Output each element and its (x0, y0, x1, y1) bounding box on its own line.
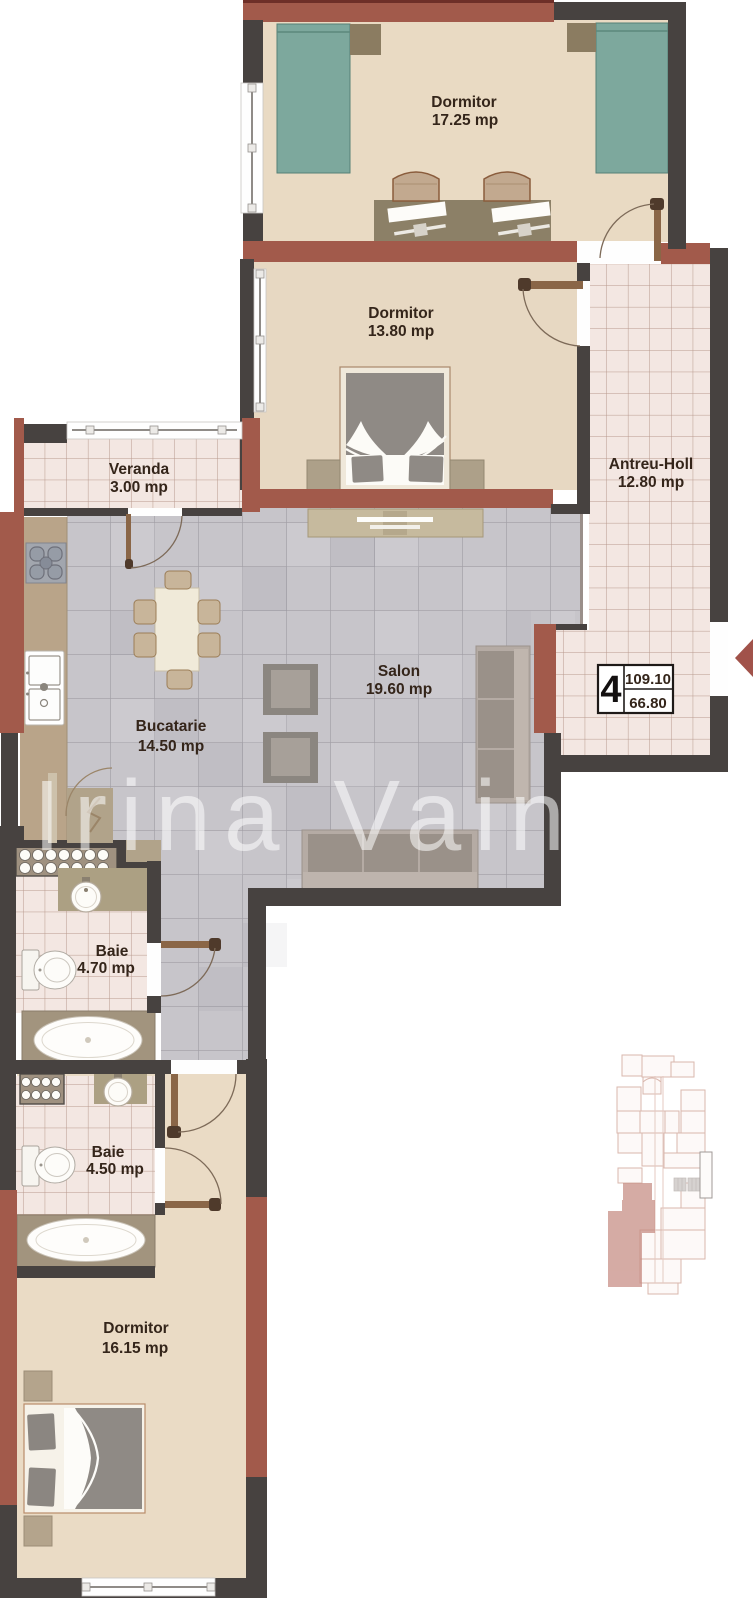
svg-text:Dormitor: Dormitor (431, 94, 496, 111)
svg-text:13.80 mp: 13.80 mp (368, 323, 434, 340)
svg-text:Bucatarie: Bucatarie (136, 718, 207, 735)
svg-text:Irina Vainb: Irina Vainb (33, 760, 647, 872)
svg-text:19.60 mp: 19.60 mp (366, 681, 432, 698)
svg-text:Veranda: Veranda (109, 461, 170, 478)
svg-text:3.00 mp: 3.00 mp (110, 479, 168, 496)
svg-text:16.15 mp: 16.15 mp (102, 1340, 168, 1357)
svg-text:109.10: 109.10 (625, 671, 671, 688)
svg-text:Dormitor: Dormitor (368, 305, 433, 322)
svg-text:4.70 mp: 4.70 mp (77, 960, 135, 977)
svg-text:12.80 mp: 12.80 mp (618, 474, 684, 491)
svg-text:66.80: 66.80 (629, 695, 667, 712)
svg-text:14.50 mp: 14.50 mp (138, 738, 204, 755)
svg-text:Antreu-Holl: Antreu-Holl (609, 456, 693, 473)
svg-text:4.50 mp: 4.50 mp (86, 1161, 144, 1178)
svg-text:17.25 mp: 17.25 mp (432, 112, 498, 129)
svg-text:4: 4 (600, 669, 621, 711)
svg-text:Baie: Baie (96, 943, 129, 960)
svg-text:Dormitor: Dormitor (103, 1320, 168, 1337)
svg-text:Baie: Baie (92, 1144, 125, 1161)
svg-text:Salon: Salon (378, 663, 420, 680)
